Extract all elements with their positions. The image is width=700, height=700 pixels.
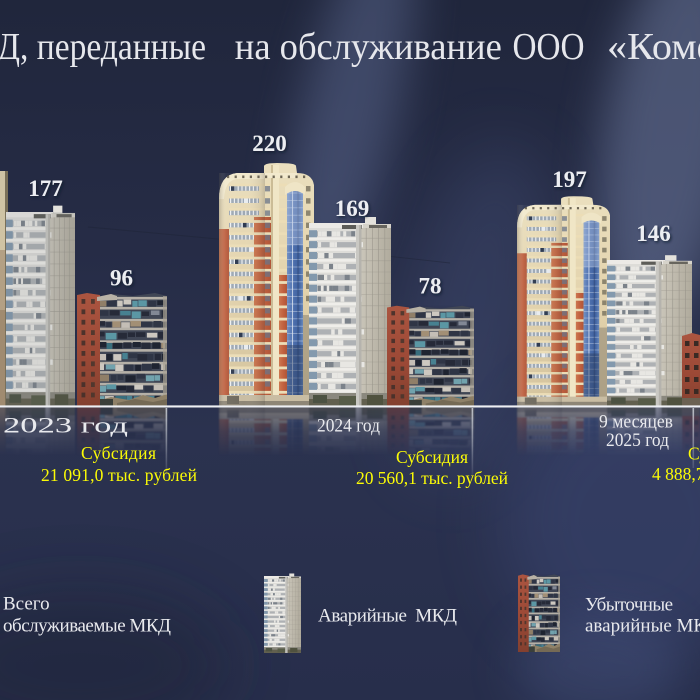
svg-text:220: 220 bbox=[252, 131, 287, 156]
svg-text:Субсидия: Субсидия bbox=[396, 447, 468, 467]
svg-text:Всего: Всего bbox=[3, 594, 50, 615]
svg-text:на обслуживание: на обслуживание bbox=[235, 26, 502, 68]
svg-text:146: 146 bbox=[636, 221, 671, 246]
svg-text:Аварийные МКД: Аварийные МКД bbox=[318, 606, 457, 627]
svg-text:ООО: ООО bbox=[513, 26, 585, 68]
svg-text:2023 год: 2023 год bbox=[3, 413, 128, 438]
svg-text:МКД, переданные: МКД, переданные bbox=[0, 26, 206, 68]
svg-text:обслуживаемые МКД: обслуживаемые МКД bbox=[3, 616, 171, 637]
svg-text:Субсидия: Субсидия bbox=[81, 443, 156, 463]
svg-text:177: 177 bbox=[28, 176, 63, 201]
svg-text:Субсидия: Субсидия bbox=[688, 444, 700, 464]
svg-text:197: 197 bbox=[552, 167, 587, 192]
svg-text:4 888,7 тыс. рублей: 4 888,7 тыс. рублей bbox=[652, 464, 700, 484]
svg-text:аварийные МКД: аварийные МКД bbox=[585, 616, 700, 637]
svg-text:«Комфорт»: «Комфорт» bbox=[607, 26, 700, 68]
svg-text:Убыточные: Убыточные bbox=[585, 595, 673, 616]
svg-text:21 091,0 тыс. рублей: 21 091,0 тыс. рублей bbox=[41, 465, 197, 485]
svg-text:96: 96 bbox=[110, 266, 133, 291]
svg-text:169: 169 bbox=[335, 196, 370, 221]
svg-text:20 560,1 тыс. рублей: 20 560,1 тыс. рублей bbox=[356, 468, 508, 488]
svg-text:2024 год: 2024 год bbox=[317, 416, 380, 437]
svg-text:2025 год: 2025 год bbox=[606, 430, 669, 451]
svg-text:78: 78 bbox=[419, 274, 442, 299]
